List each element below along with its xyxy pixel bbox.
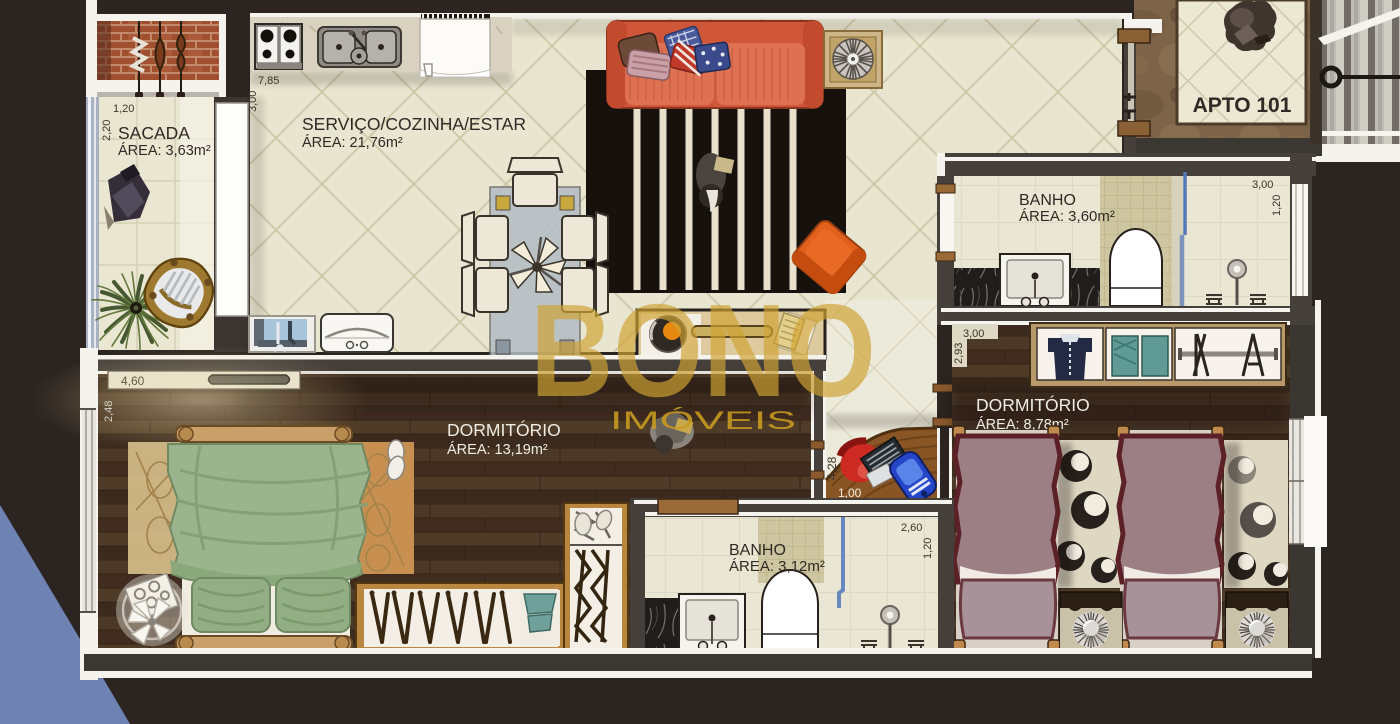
svg-text:BANHO: BANHO [1019,192,1076,209]
svg-text:APTO 101: APTO 101 [1193,94,1292,117]
svg-text:3,00: 3,00 [963,328,984,340]
svg-text:3,00: 3,00 [247,91,259,112]
svg-text:ÁREA: 21,76m²: ÁREA: 21,76m² [302,134,403,151]
svg-text:2,93: 2,93 [953,343,965,364]
svg-text:7,85: 7,85 [258,75,279,87]
svg-text:1,20: 1,20 [922,538,934,559]
svg-text:1,00: 1,00 [838,486,862,500]
svg-text:3,00: 3,00 [1252,179,1273,191]
svg-text:ÁREA: 13,19m²: ÁREA: 13,19m² [447,441,548,458]
svg-text:ÁREA: 3,60m²: ÁREA: 3,60m² [1019,208,1115,225]
svg-text:2,48: 2,48 [103,401,115,422]
svg-text:2,20: 2,20 [101,120,113,141]
svg-text:BANHO: BANHO [729,542,786,559]
svg-text:1,20: 1,20 [1271,195,1283,216]
svg-text:2,60: 2,60 [901,522,922,534]
svg-text:SERVIÇO/COZINHA/ESTAR: SERVIÇO/COZINHA/ESTAR [302,114,526,134]
svg-text:ÁREA: 3,63m²: ÁREA: 3,63m² [118,142,211,159]
svg-text:DORMITÓRIO: DORMITÓRIO [976,394,1090,415]
svg-text:SACADA: SACADA [118,123,190,143]
svg-text:ÁREA: 3,12m²: ÁREA: 3,12m² [729,558,825,575]
svg-text:1,20: 1,20 [113,103,134,115]
svg-text:4,28: 4,28 [825,456,839,480]
svg-text:IMÓVEIS: IMÓVEIS [610,406,796,435]
svg-text:BONO: BONO [530,277,876,424]
